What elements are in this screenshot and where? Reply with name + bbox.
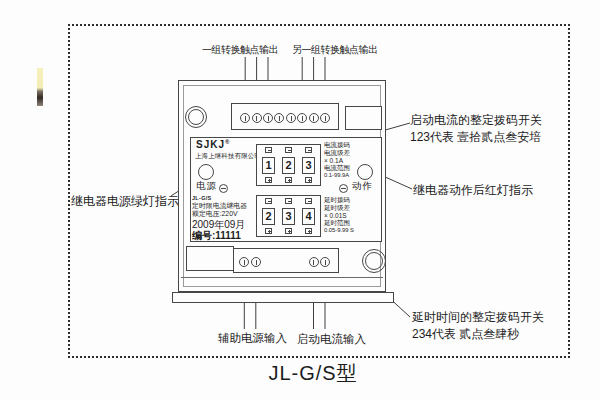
plus-icon [305, 228, 312, 234]
current-dip-info: 电流拨码 电流级差 × 0.1A 电流范围 0.1-99.9A [324, 141, 382, 180]
serial-number: 编号:11111 [192, 231, 256, 241]
callout-delay-dip-line2: 234代表 贰点叁肆秒 [412, 326, 544, 343]
minus-icon [265, 147, 272, 153]
power-led-label: 电源 [196, 180, 217, 193]
device-base [172, 292, 394, 303]
callout-delay-dip-line1: 延时时间的整定拨码开关 [412, 309, 544, 326]
screw-slot-icon [219, 184, 228, 193]
minus-icon [285, 198, 292, 204]
screw-icon [362, 249, 386, 273]
minus-icon [305, 147, 312, 153]
minus-icon [265, 198, 272, 204]
terminal-icon [309, 113, 319, 123]
info-line: 延时级差 [324, 204, 382, 212]
bottom-left-block [186, 246, 234, 271]
info-line: 电流拨码 [324, 141, 382, 149]
callout-current-dip-line1: 启动电流的整定拨码开关 [410, 112, 542, 129]
current-dip-block: 1 2 3 [256, 144, 321, 186]
screw-slot-icon [339, 184, 348, 193]
terminal-icon [251, 257, 261, 267]
callout-contact-group-1: 一组转换触点输出 [202, 43, 278, 57]
dip-wheel: 3 [301, 147, 316, 183]
terminal-icon [286, 113, 296, 123]
terminal-icon [320, 257, 330, 267]
plus-icon [285, 177, 292, 183]
callout-contact-group-2: 另一组转换触点输出 [292, 43, 378, 57]
info-line: × 0.1A [324, 157, 382, 165]
callout-aux-power-input: 辅助电源输入 [218, 330, 287, 347]
info-line: 0.1-99.9A [324, 172, 382, 180]
callout-current-dip: 启动电流的整定拨码开关 123代表 壹拾贰点叁安培 [410, 112, 542, 146]
dip-digit: 4 [302, 208, 315, 225]
dip-digit: 3 [302, 157, 315, 174]
delay-dip-block: 2 3 4 [256, 195, 321, 237]
dip-digit: 1 [262, 157, 275, 174]
callout-delay-dip: 延时时间的整定拨码开关 234代表 贰点叁肆秒 [412, 309, 544, 343]
nameplate-info: JL-G/S 定时限电流继电器 额定电压:220V 2009年09月 编号:11… [192, 196, 256, 241]
plus-icon [285, 228, 292, 234]
callout-action-led: 继电器动作后红灯指示 [413, 182, 533, 199]
plus-icon [305, 177, 312, 183]
screw-icon [185, 106, 207, 128]
plus-icon [265, 177, 272, 183]
top-right-block [345, 106, 382, 130]
model-small: JL-G/S [192, 196, 256, 202]
dip-wheel: 2 [261, 198, 276, 234]
minus-icon [285, 147, 292, 153]
terminal-icon [320, 113, 330, 123]
company-name: 上海上继科技有限公司 [195, 152, 261, 161]
dip-wheel: 1 [261, 147, 276, 183]
dip-wheel: 4 [301, 198, 316, 234]
dip-wheel: 3 [281, 198, 296, 234]
delay-dip-info: 延时拨码 延时级差 × 0.01S 延时范围 0.05-9.99 S [324, 196, 382, 235]
device-bottom-line [181, 277, 383, 278]
terminal-icon [252, 113, 262, 123]
brand-logo: SJKJ® [196, 139, 230, 150]
callout-power-led: 继电器电源绿灯指示 [71, 193, 179, 210]
dip-digit: 3 [282, 208, 295, 225]
info-line: 0.05-9.99 S [324, 227, 382, 235]
info-line: × 0.01S [324, 212, 382, 220]
rated-voltage: 额定电压:220V [192, 211, 256, 218]
registered-mark: ® [225, 139, 230, 145]
manufacture-date: 2009年09月 [192, 220, 256, 230]
callout-start-current-input: 启动电流输入 [297, 331, 366, 348]
dip-wheel: 2 [281, 147, 296, 183]
dip-digit: 2 [262, 208, 275, 225]
figure-canvas: 一组转换触点输出 另一组转换触点输出 启动电流的整定拨码开关 123代表 壹拾贰… [0, 0, 600, 400]
dip-digit: 2 [282, 157, 295, 174]
power-led-indicator [198, 164, 214, 180]
info-line: 延时范围 [324, 219, 382, 227]
product-name: 定时限电流继电器 [192, 203, 256, 210]
info-line: 电流级差 [324, 149, 382, 157]
minus-icon [305, 198, 312, 204]
terminal-icon [263, 113, 273, 123]
plus-icon [265, 228, 272, 234]
info-line: 延时拨码 [324, 196, 382, 204]
brand-text: SJKJ [196, 139, 225, 150]
callout-current-dip-line2: 123代表 壹拾贰点叁安培 [410, 129, 542, 146]
figure-title: JL-G/S型 [173, 360, 453, 387]
action-led-label: 动作 [352, 180, 373, 193]
terminal-icon [309, 257, 319, 267]
info-line: 电流范围 [324, 164, 382, 172]
